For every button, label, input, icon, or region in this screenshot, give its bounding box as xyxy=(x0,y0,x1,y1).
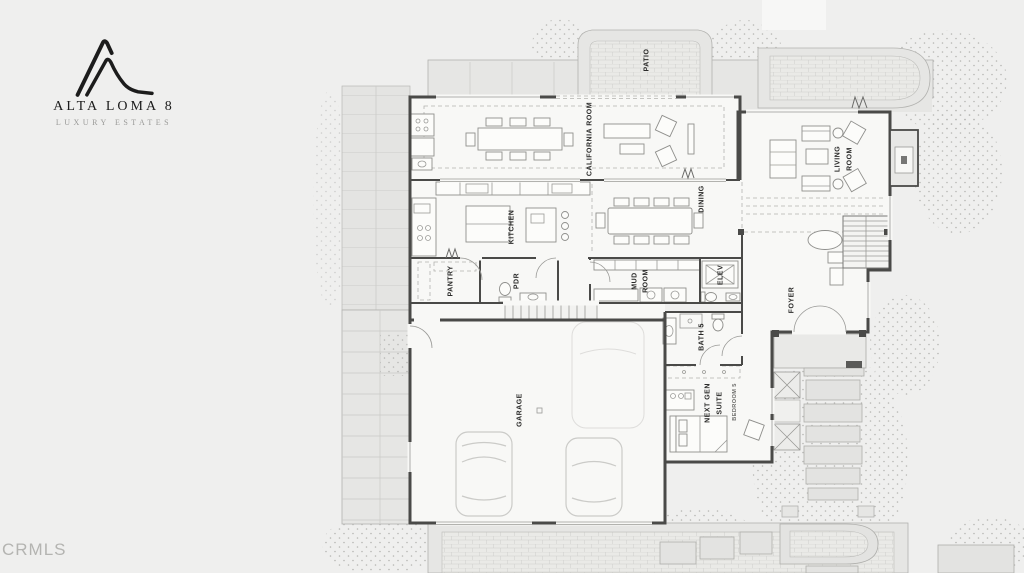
brand-logo: ALTA LOMA 8 LUXURY ESTATES xyxy=(46,36,182,127)
foyer-table xyxy=(808,231,842,250)
label-kitchen: KITCHEN xyxy=(508,210,515,245)
label-powder-room: PDR xyxy=(513,273,520,289)
outdoor-dining-table xyxy=(478,128,562,150)
brand-title: ALTA LOMA 8 xyxy=(46,99,182,115)
label-california-room: CALIFORNIA ROOM xyxy=(586,102,593,176)
label-garage: GARAGE xyxy=(516,393,523,427)
label-bedroom5: BEDROOM 5 xyxy=(732,383,738,420)
label-living-1: LIVING xyxy=(834,146,841,172)
dining-table xyxy=(608,208,692,234)
label-nextgen-2: SUITE xyxy=(716,391,723,414)
basement-stairs xyxy=(505,304,597,319)
corner-pad xyxy=(938,545,1014,573)
crmls-watermark: CRMLS xyxy=(2,540,67,560)
mountain-logo-icon xyxy=(70,36,158,98)
label-elevator: ELEV xyxy=(717,265,724,285)
label-dining: DINING xyxy=(698,185,705,213)
floorplan-page: PATIO CALIFORNIA ROOM LIVING ROOM KITCHE… xyxy=(0,0,1024,573)
label-living-2: ROOM xyxy=(846,147,853,171)
label-pantry: PANTRY xyxy=(447,266,454,297)
brand-subtitle: LUXURY ESTATES xyxy=(46,118,182,127)
label-patio: PATIO xyxy=(643,49,650,72)
label-foyer: FOYER xyxy=(788,287,795,314)
label-bath5: BATH 5 xyxy=(698,323,705,351)
label-mud-1: MUD xyxy=(631,272,638,289)
label-nextgen-1: NEXT GEN xyxy=(704,383,711,423)
label-mud-2: ROOM xyxy=(642,269,649,293)
outdoor-sofa xyxy=(604,124,650,138)
